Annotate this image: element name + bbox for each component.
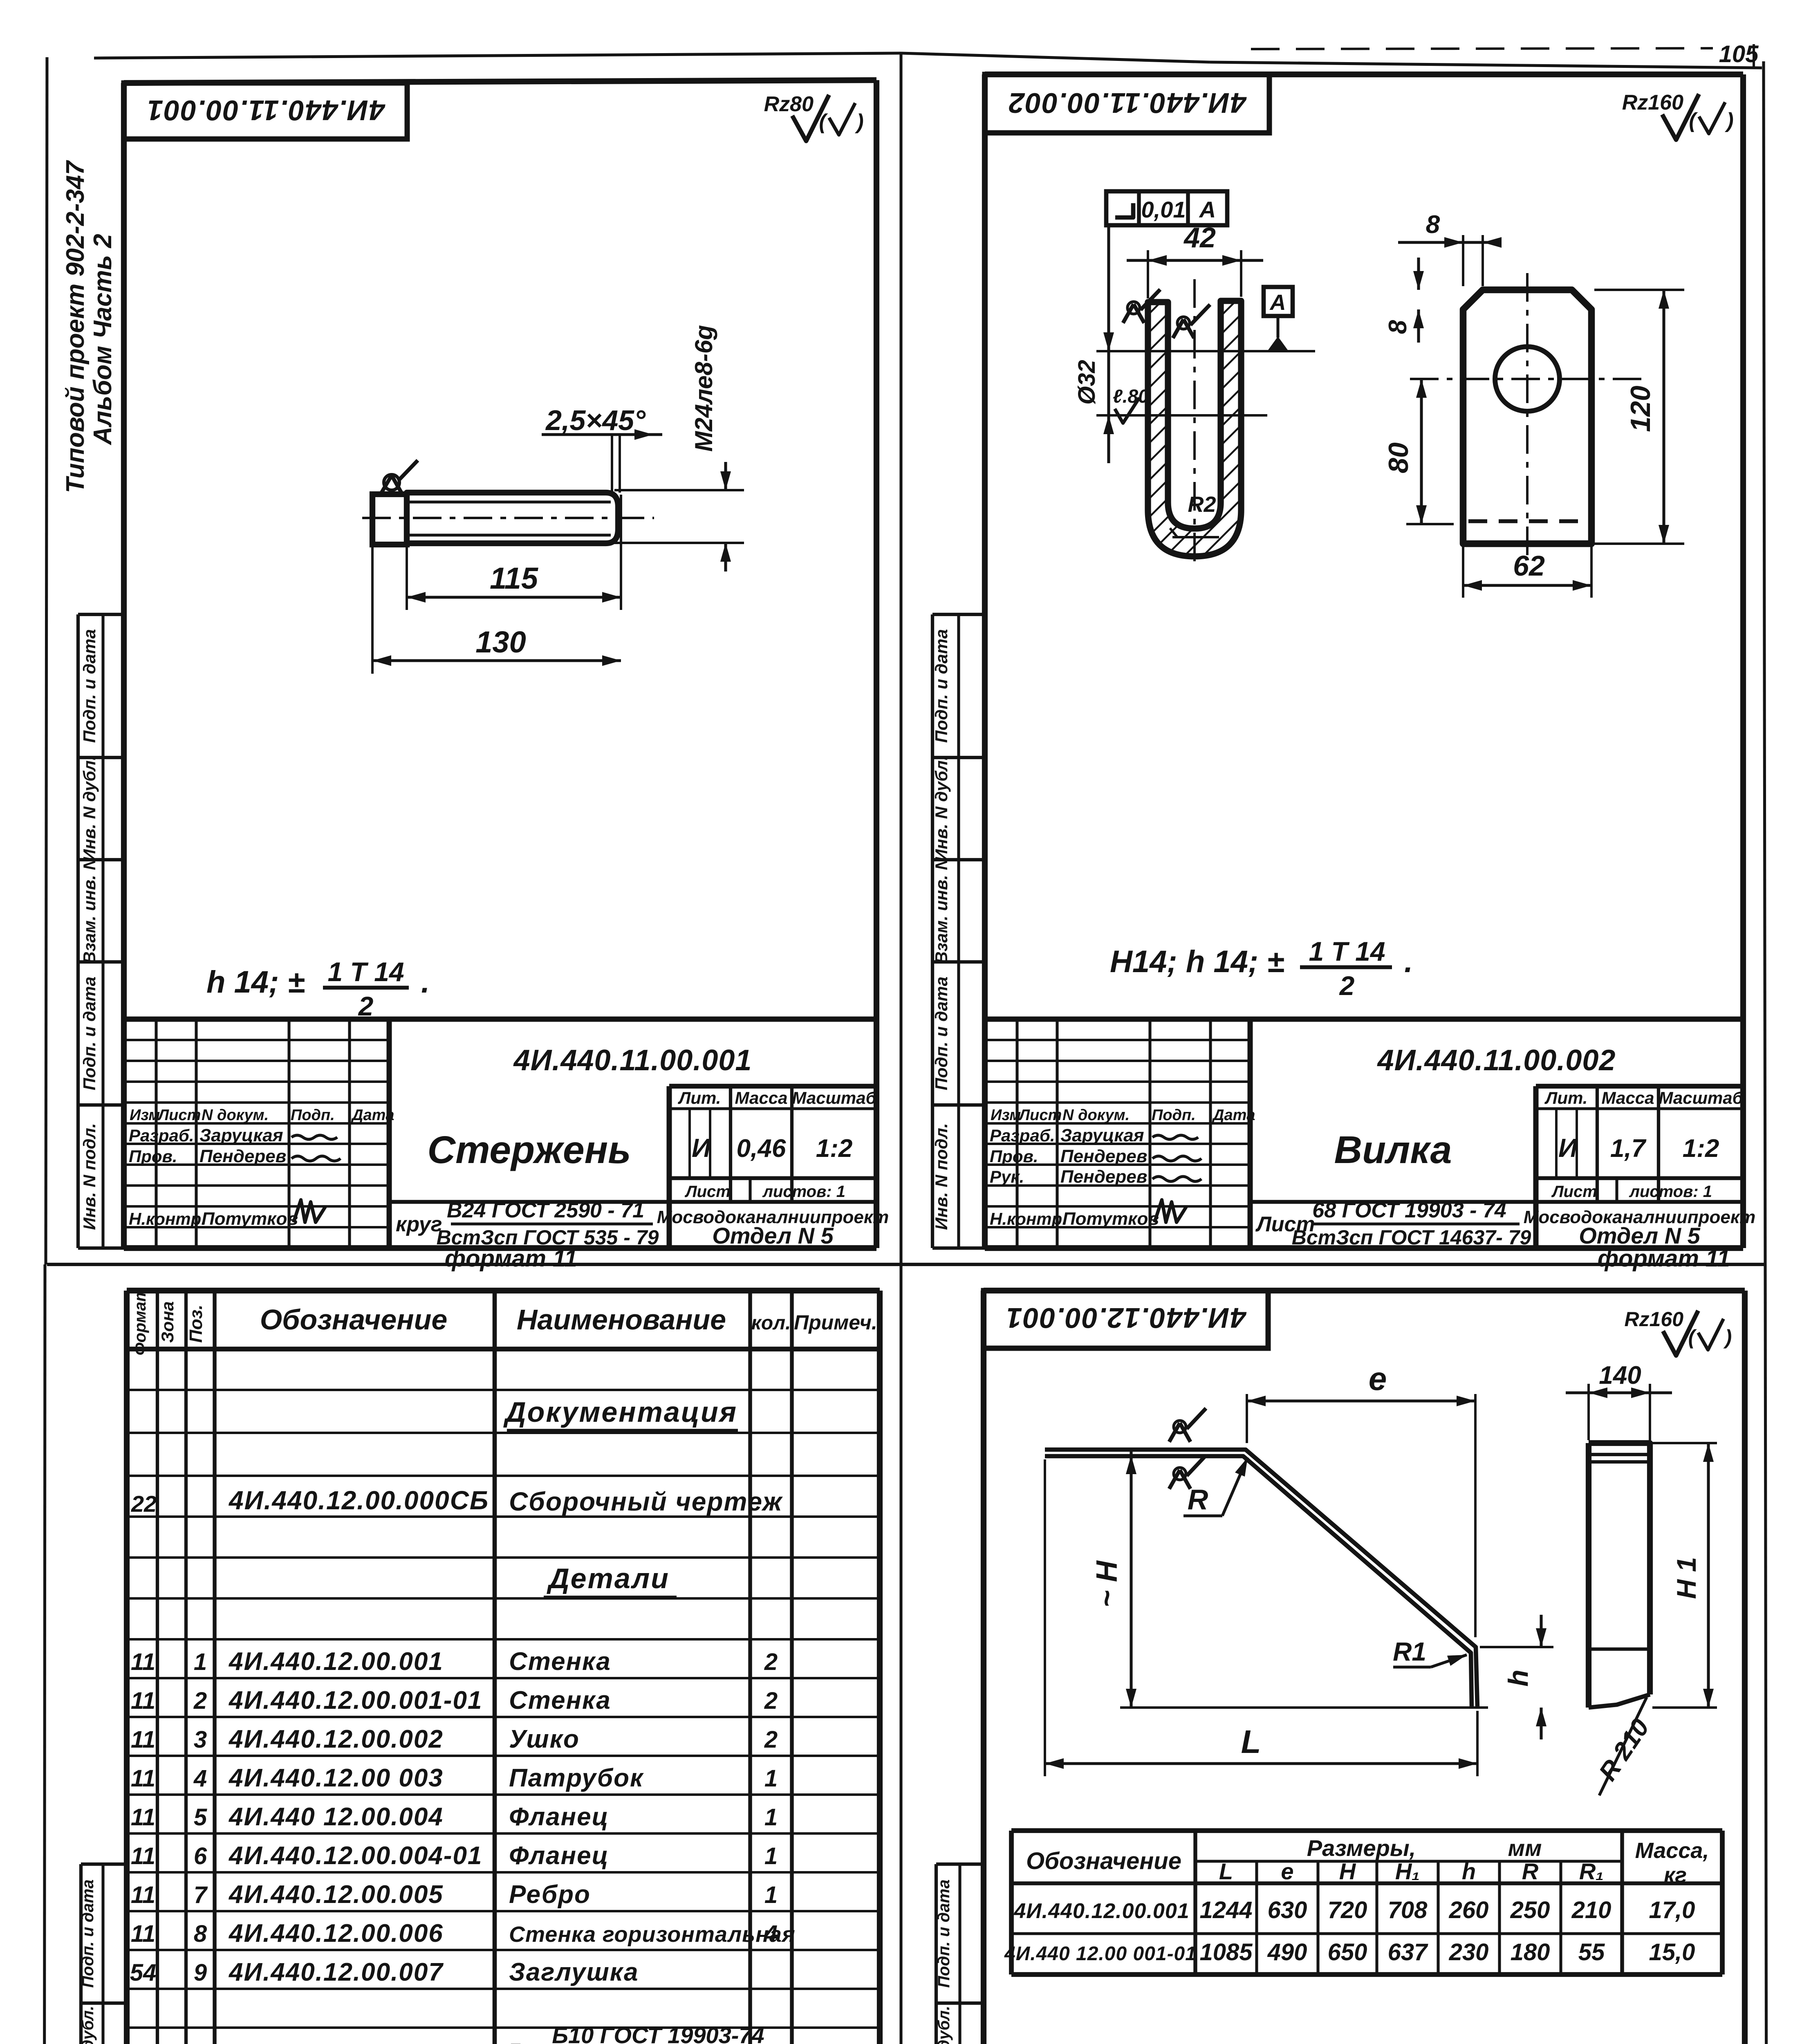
- svg-text:11: 11: [131, 1843, 155, 1869]
- svg-text:11: 11: [131, 1765, 155, 1792]
- svg-text:мм: мм: [1508, 1835, 1542, 1861]
- svg-text:120: 120: [1625, 385, 1656, 432]
- svg-text:Масса: Масса: [1602, 1088, 1654, 1107]
- svg-text:630: 630: [1268, 1897, 1307, 1923]
- svg-text:Документация: Документация: [503, 1396, 737, 1428]
- svg-text:130: 130: [475, 625, 526, 659]
- svg-text:2: 2: [764, 1649, 778, 1675]
- svg-text:Детали: Детали: [547, 1562, 670, 1594]
- svg-text:4И.440.12.00.004-01: 4И.440.12.00.004-01: [228, 1842, 482, 1870]
- svg-text:Подп. и дата: Подп. и дата: [80, 977, 99, 1090]
- svg-text:А: А: [1269, 290, 1286, 315]
- svg-text:Пендерев: Пендерев: [199, 1146, 286, 1166]
- svg-text:листов: 1: листов: 1: [1629, 1183, 1712, 1201]
- svg-text:Подп. и дата: Подп. и дата: [932, 629, 951, 743]
- svg-text:4И.440.12.00.000СБ: 4И.440.12.00.000СБ: [228, 1486, 489, 1515]
- svg-text:Rz160: Rz160: [1624, 1308, 1683, 1331]
- svg-text:1: 1: [764, 1843, 778, 1869]
- svg-text:Н₁: Н₁: [1395, 1858, 1420, 1884]
- svg-text:Н: Н: [1339, 1858, 1356, 1884]
- svg-text:e: e: [1281, 1858, 1293, 1884]
- svg-text:105: 105: [1719, 41, 1759, 67]
- svg-text:листов: 1: листов: 1: [762, 1183, 845, 1201]
- svg-text:R2: R2: [1188, 492, 1216, 517]
- svg-text:Подп. и дата: Подп. и дата: [79, 1880, 97, 1988]
- svg-text:Подп.: Подп.: [1152, 1107, 1196, 1124]
- svg-text:Отдел N 5: Отдел N 5: [712, 1223, 834, 1248]
- svg-text:4И.440.11.00.001: 4И.440.11.00.001: [146, 94, 386, 126]
- svg-text:Лит.: Лит.: [678, 1088, 721, 1107]
- svg-text:68 ГОСТ 19903 - 74: 68 ГОСТ 19903 - 74: [1312, 1199, 1506, 1222]
- svg-text:Масса,: Масса,: [1635, 1838, 1709, 1863]
- svg-text:Пров.: Пров.: [990, 1147, 1038, 1166]
- svg-text:ℓ.80: ℓ.80: [1113, 385, 1149, 407]
- svg-text:Дата: Дата: [351, 1107, 394, 1124]
- svg-text:708: 708: [1388, 1897, 1428, 1923]
- svg-text:4И.440.12.00.001: 4И.440.12.00.001: [1013, 1899, 1189, 1923]
- svg-text:Пров.: Пров.: [129, 1147, 177, 1166]
- svg-text:Rz160: Rz160: [1622, 91, 1683, 114]
- svg-text:М24ле8-6g: М24ле8-6g: [690, 325, 717, 452]
- svg-text:Взам. инв. N: Взам. инв. N: [932, 857, 951, 964]
- svg-text:4И.440 12.00.004: 4И.440 12.00.004: [228, 1803, 444, 1831]
- svg-text:22: 22: [131, 1491, 157, 1517]
- svg-text:4: 4: [193, 1765, 207, 1792]
- svg-text:Масса: Масса: [735, 1088, 788, 1107]
- svg-text:8: 8: [194, 1921, 207, 1947]
- svg-text:А: А: [1199, 197, 1216, 222]
- svg-text:Взам. инв. N: Взам. инв. N: [80, 857, 99, 964]
- svg-text:И: И: [1558, 1133, 1578, 1163]
- svg-text:.: .: [421, 965, 430, 1000]
- svg-text:250: 250: [1510, 1897, 1550, 1923]
- svg-text:Лист: Лист: [684, 1183, 731, 1201]
- svg-text:Потутков: Потутков: [202, 1209, 298, 1229]
- svg-text:Типовой проект 902-2-347: Типовой проект 902-2-347: [61, 160, 90, 493]
- svg-text:Вилка: Вилка: [1334, 1128, 1452, 1172]
- svg-text:8: 8: [1426, 211, 1440, 239]
- svg-text:Подп. и дата: Подп. и дата: [935, 1880, 953, 1988]
- svg-text:Сборочный чертеж: Сборочный чертеж: [509, 1487, 783, 1516]
- svg-text:Потутков: Потутков: [1062, 1209, 1159, 1229]
- svg-text:4И.440.11.00.001: 4И.440.11.00.001: [513, 1044, 752, 1077]
- svg-text:h: h: [1503, 1670, 1534, 1687]
- svg-text:260: 260: [1449, 1897, 1489, 1923]
- svg-text:Патрубок: Патрубок: [509, 1764, 644, 1792]
- svg-text:Фланец: Фланец: [509, 1803, 609, 1831]
- svg-text:Альбом Часть 2: Альбом Часть 2: [89, 234, 117, 446]
- svg-text:4И.440.12.00 003: 4И.440.12.00 003: [228, 1764, 444, 1792]
- svg-text:Фланец: Фланец: [509, 1842, 609, 1870]
- svg-text:формат 11: формат 11: [1598, 1245, 1730, 1272]
- svg-text:Примеч.: Примеч.: [794, 1311, 877, 1334]
- svg-text:Rz80: Rz80: [764, 92, 814, 116]
- svg-text:4И.440 12.00 001-01: 4И.440 12.00 001-01: [1004, 1943, 1197, 1965]
- svg-text:140: 140: [1599, 1361, 1641, 1390]
- svg-text:62: 62: [1513, 550, 1545, 582]
- svg-text:кг: кг: [1664, 1863, 1687, 1887]
- svg-text:1085: 1085: [1199, 1939, 1253, 1966]
- svg-text:Стенка горизонтальная: Стенка горизонтальная: [509, 1922, 796, 1947]
- svg-text:Заруцкая: Заруцкая: [199, 1125, 283, 1145]
- svg-text:Разраб.: Разраб.: [990, 1126, 1055, 1145]
- svg-text:Пендерев: Пендерев: [1060, 1146, 1147, 1166]
- svg-text:N докум.: N докум.: [1062, 1107, 1130, 1124]
- svg-text:Ø32: Ø32: [1074, 360, 1100, 405]
- svg-text:Инв. N подл.: Инв. N подл.: [80, 1123, 99, 1230]
- svg-text:Н.контр.: Н.контр.: [129, 1209, 206, 1228]
- svg-text:Обозначение: Обозначение: [260, 1304, 448, 1336]
- svg-text:11: 11: [131, 1726, 155, 1753]
- svg-text:6: 6: [194, 1843, 207, 1869]
- svg-text:1: 1: [764, 1765, 778, 1792]
- svg-text:42: 42: [1183, 222, 1216, 253]
- svg-text:Заруцкая: Заруцкая: [1060, 1125, 1144, 1145]
- svg-text:11: 11: [131, 1921, 155, 1947]
- svg-text:Лист: Лист: [1551, 1183, 1597, 1201]
- svg-text:Лист: Лист: [1018, 1107, 1062, 1124]
- svg-text:Инв. N дубл.: Инв. N дубл.: [935, 2006, 953, 2044]
- svg-text:720: 720: [1328, 1897, 1367, 1923]
- svg-text:15,0: 15,0: [1649, 1939, 1695, 1966]
- svg-text:Лист: Лист: [157, 1107, 201, 1124]
- svg-text:1244: 1244: [1199, 1897, 1252, 1923]
- svg-text:Подп. и дата: Подп. и дата: [932, 977, 951, 1090]
- svg-text:11: 11: [131, 1688, 155, 1714]
- svg-text:Н.контр.: Н.контр.: [990, 1209, 1067, 1228]
- svg-text:7: 7: [194, 1882, 208, 1908]
- svg-text:210: 210: [1571, 1897, 1612, 1923]
- svg-text:R: R: [1522, 1858, 1539, 1884]
- svg-text:Инв. N дубл.: Инв. N дубл.: [79, 2006, 97, 2044]
- svg-text:Формат: Формат: [131, 1287, 149, 1356]
- svg-text:2: 2: [193, 1688, 207, 1714]
- svg-text:Масштаб: Масштаб: [1659, 1088, 1743, 1107]
- svg-text:Пендерев: Пендерев: [1060, 1167, 1147, 1187]
- svg-text:Поз.: Поз.: [186, 1304, 206, 1342]
- svg-text:Н14; h 14; ±: Н14; h 14; ±: [1110, 944, 1284, 979]
- svg-text:490: 490: [1267, 1939, 1307, 1966]
- svg-text:1 Т 14: 1 Т 14: [1309, 936, 1385, 966]
- svg-text:Изм: Изм: [991, 1107, 1021, 1124]
- svg-text:54: 54: [130, 1959, 157, 1986]
- svg-text:кол.: кол.: [751, 1312, 791, 1334]
- svg-text:3: 3: [194, 1726, 207, 1753]
- svg-text:Ушко: Ушко: [509, 1725, 580, 1753]
- svg-text:N докум.: N докум.: [202, 1107, 269, 1124]
- svg-text:Отдел N 5: Отдел N 5: [1579, 1223, 1700, 1248]
- svg-text:0,01: 0,01: [1141, 197, 1186, 222]
- svg-text:180: 180: [1511, 1939, 1550, 1966]
- svg-text:Рук.: Рук.: [990, 1167, 1024, 1186]
- svg-text:11: 11: [131, 1882, 155, 1908]
- svg-text:11: 11: [131, 1804, 155, 1831]
- svg-text:Н 1: Н 1: [1671, 1557, 1701, 1599]
- svg-text:R1: R1: [1393, 1637, 1426, 1666]
- svg-text:1: 1: [764, 1882, 778, 1908]
- svg-text:Обозначение: Обозначение: [1026, 1848, 1181, 1874]
- svg-text:55: 55: [1578, 1939, 1605, 1966]
- svg-text:1:2: 1:2: [1683, 1134, 1719, 1163]
- svg-text:4И.440.11.00.002: 4И.440.11.00.002: [1377, 1044, 1616, 1077]
- svg-text:формат 11: формат 11: [445, 1245, 577, 1272]
- svg-text:2,5×45°: 2,5×45°: [545, 404, 646, 436]
- svg-text:h 14; ±: h 14; ±: [206, 965, 305, 1000]
- svg-text:Масштаб: Масштаб: [792, 1088, 876, 1107]
- svg-text:Дата: Дата: [1212, 1107, 1255, 1124]
- svg-text:~ Н: ~ Н: [1091, 1560, 1123, 1607]
- svg-text:1: 1: [764, 1804, 778, 1831]
- svg-text:Зона: Зона: [158, 1301, 177, 1342]
- svg-text:4И.440.12.00.001-01: 4И.440.12.00.001-01: [228, 1686, 482, 1715]
- svg-text:11: 11: [131, 1649, 155, 1675]
- svg-text:17,0: 17,0: [1649, 1897, 1695, 1923]
- svg-text:1,7: 1,7: [1610, 1134, 1647, 1163]
- svg-text:2: 2: [764, 1688, 778, 1714]
- svg-text:Стенка: Стенка: [509, 1686, 611, 1715]
- svg-text:4И.440.12.00.002: 4И.440.12.00.002: [228, 1725, 444, 1753]
- svg-text:0,46: 0,46: [737, 1134, 786, 1163]
- svg-text:R₁: R₁: [1579, 1858, 1604, 1884]
- svg-text:2: 2: [1339, 970, 1355, 1001]
- svg-text:Подп.: Подп.: [291, 1107, 335, 1124]
- svg-text:637: 637: [1388, 1939, 1429, 1966]
- svg-text:Лит.: Лит.: [1544, 1088, 1588, 1107]
- svg-text:.: .: [1404, 944, 1413, 979]
- svg-text:Стенка: Стенка: [509, 1647, 611, 1676]
- svg-text:4И.440.11.00.002: 4И.440.11.00.002: [1008, 87, 1247, 119]
- svg-text:230: 230: [1449, 1939, 1489, 1966]
- svg-text:Размеры,: Размеры,: [1307, 1835, 1416, 1861]
- svg-text:Б10 ГОСТ 19903-74: Б10 ГОСТ 19903-74: [552, 2022, 764, 2044]
- svg-text:650: 650: [1328, 1939, 1367, 1966]
- svg-text:4И.440.12.00.001: 4И.440.12.00.001: [1006, 1302, 1247, 1334]
- svg-text:1:2: 1:2: [816, 1134, 853, 1163]
- svg-text:В24 ГОСТ 2590 - 71: В24 ГОСТ 2590 - 71: [447, 1199, 644, 1222]
- svg-text:4И.440.12.00.007: 4И.440.12.00.007: [228, 1958, 444, 1986]
- svg-text:Стержень: Стержень: [427, 1128, 631, 1172]
- svg-text:круг: круг: [396, 1213, 442, 1236]
- svg-text:4И.440.12.00.005: 4И.440.12.00.005: [228, 1880, 444, 1909]
- svg-text:8: 8: [1384, 320, 1412, 334]
- svg-text:4: 4: [764, 1921, 778, 1947]
- svg-text:4И.440.12.00.001: 4И.440.12.00.001: [228, 1647, 444, 1676]
- svg-text:80: 80: [1383, 442, 1414, 473]
- svg-text:Ребро: Ребро: [509, 1880, 591, 1909]
- svg-text:Подп. и дата: Подп. и дата: [80, 629, 99, 743]
- svg-text:L: L: [1219, 1858, 1233, 1884]
- svg-text:Наименование: Наименование: [517, 1304, 726, 1336]
- svg-text:115: 115: [490, 561, 539, 595]
- svg-text:5: 5: [194, 1804, 207, 1831]
- svg-text:Заглушка: Заглушка: [509, 1958, 639, 1986]
- svg-text:L: L: [1241, 1724, 1261, 1760]
- svg-text:Инв. N подл.: Инв. N подл.: [932, 1123, 951, 1230]
- svg-text:Инв. N дубл.: Инв. N дубл.: [80, 755, 99, 861]
- svg-text:9: 9: [194, 1959, 207, 1986]
- svg-text:Изм: Изм: [130, 1107, 160, 1124]
- svg-text:И: И: [692, 1133, 711, 1163]
- svg-text:e: e: [1369, 1360, 1387, 1397]
- svg-text:Инв. N дубл.: Инв. N дубл.: [932, 755, 951, 861]
- svg-text:1: 1: [194, 1649, 207, 1675]
- svg-text:2: 2: [764, 1726, 778, 1753]
- svg-text:ВстЗсп ГОСТ 14637- 79: ВстЗсп ГОСТ 14637- 79: [1292, 1226, 1531, 1249]
- svg-text:4И.440.12.00.006: 4И.440.12.00.006: [228, 1919, 444, 1948]
- svg-text:1 Т 14: 1 Т 14: [327, 957, 404, 987]
- svg-text:Разраб.: Разраб.: [129, 1126, 194, 1145]
- svg-text:h: h: [1462, 1858, 1476, 1884]
